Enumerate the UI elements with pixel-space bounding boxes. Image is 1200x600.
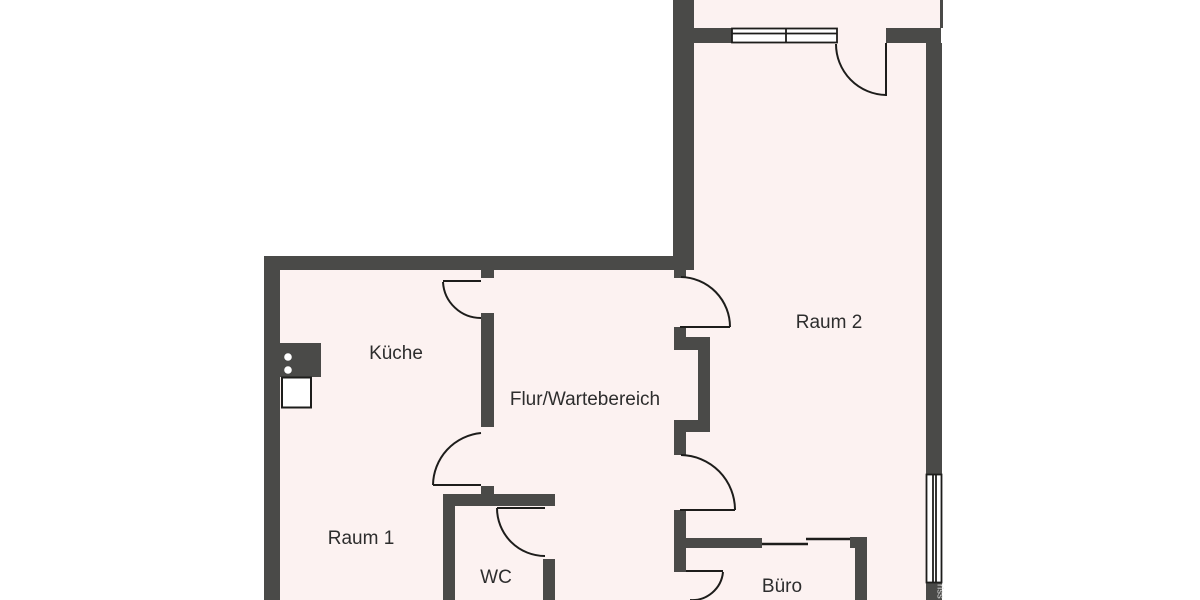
wall-top-main bbox=[264, 256, 694, 270]
burner-dot-2 bbox=[284, 366, 292, 374]
wall-wc-top bbox=[443, 494, 555, 506]
wall-left-exterior bbox=[264, 256, 280, 600]
wall-kueche-divider bbox=[481, 313, 494, 427]
wall-niche-right bbox=[698, 337, 710, 432]
watermark-text: riss bbox=[935, 584, 946, 599]
wall-middle-seg2 bbox=[674, 432, 686, 455]
wall-right-upper bbox=[926, 43, 942, 474]
floor-plan-canvas: Küche Flur/Wartebereich Raum 2 Raum 1 WC… bbox=[0, 0, 1200, 600]
window-right bbox=[927, 475, 942, 583]
kitchen-appliance-square bbox=[282, 378, 311, 408]
floor-top-room bbox=[694, 0, 941, 28]
wall-buero-right bbox=[855, 548, 867, 600]
label-raum2: Raum 2 bbox=[796, 312, 863, 333]
wall-divider-stub-bottom bbox=[481, 486, 494, 494]
wall-toproom-bottom-right bbox=[886, 28, 941, 43]
label-kueche: Küche bbox=[369, 343, 423, 364]
label-buero: Büro bbox=[762, 576, 802, 597]
wall-buero-top-corner bbox=[850, 537, 867, 548]
label-wc: WC bbox=[480, 567, 512, 588]
window-top bbox=[732, 29, 837, 43]
wall-divider-stub-top bbox=[481, 270, 494, 278]
label-raum1: Raum 1 bbox=[328, 528, 395, 549]
wall-toproom-bottom-left bbox=[694, 28, 732, 43]
wall-middle-upper-exterior bbox=[673, 0, 694, 270]
floor-plan-svg: Küche Flur/Wartebereich Raum 2 Raum 1 WC… bbox=[0, 0, 1200, 600]
wall-buero-top bbox=[674, 538, 762, 548]
burner-dot-1 bbox=[284, 353, 292, 361]
wall-niche-bottom bbox=[674, 420, 710, 432]
floors bbox=[280, 0, 941, 600]
wall-wc-right-stub bbox=[543, 559, 555, 600]
label-flur: Flur/Wartebereich bbox=[510, 389, 660, 410]
wall-wc-left bbox=[443, 494, 455, 600]
